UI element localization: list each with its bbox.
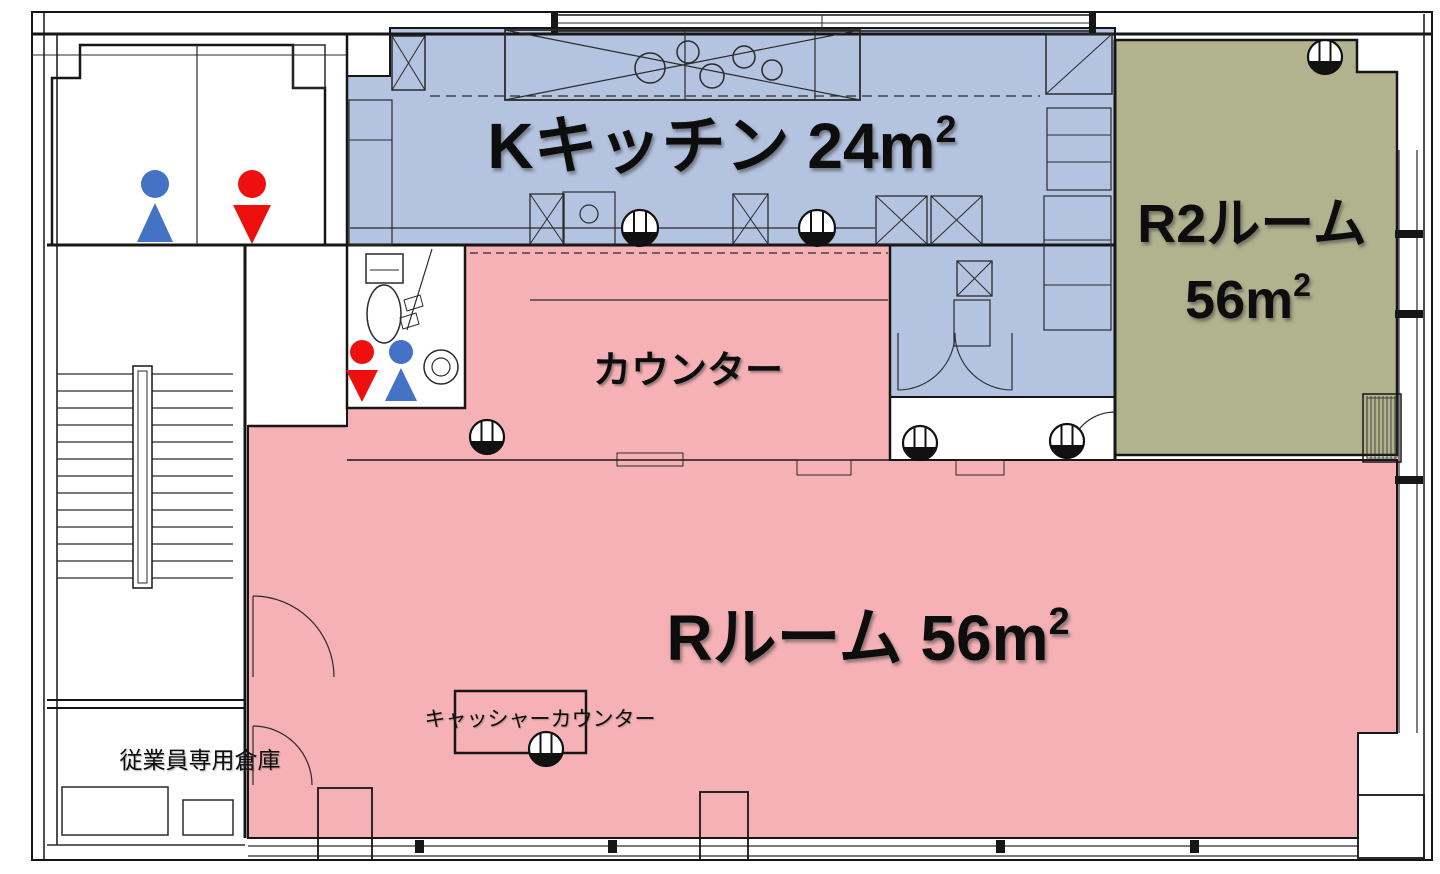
column-symbol-icon [799, 210, 835, 246]
storage-top-wall [47, 700, 245, 708]
bottom-window-tick-4 [1190, 840, 1199, 853]
stair-rail-inner [138, 371, 147, 583]
male-icon-body [385, 368, 417, 401]
male-toilet-icon [385, 340, 417, 401]
bottom-right-pillar [1358, 795, 1424, 858]
bottom-window-tick-1 [415, 840, 424, 853]
male-restroom-icon [137, 170, 173, 242]
r2-label-name: R2ルーム [1137, 194, 1366, 254]
storage-shelf-small [183, 800, 233, 835]
storage-label: 従業員専用倉庫 [120, 747, 281, 773]
r2-room-label-line1: R2ルーム [1137, 194, 1366, 254]
counter-label: カウンター [593, 350, 783, 392]
floor-plan-drawing: 従業員専用倉庫 [0, 0, 1440, 874]
wash-basin-outer [424, 350, 458, 384]
stair-treads-right [152, 374, 233, 578]
right-window-tick-3 [1395, 476, 1423, 484]
column-base [904, 447, 937, 460]
cashier-counter-label: キャッシャーカウンター [425, 708, 656, 731]
r-room-label: Rルーム 56m2 [666, 601, 1069, 674]
bottom-window-tick-2 [608, 840, 617, 853]
stair-rail-outer [133, 366, 152, 588]
female-toilet-icon [346, 340, 378, 402]
male-icon-head [141, 170, 169, 198]
female-icon-head [350, 340, 374, 364]
restroom-outline [52, 45, 325, 245]
kitchen-label-sup: 2 [935, 109, 956, 151]
kitchen-label-main: Kキッチン 24m [487, 110, 935, 182]
toilet-room [346, 245, 465, 408]
male-icon-body [137, 203, 173, 242]
r-label-main: Rルーム 56m [666, 602, 1048, 674]
column-symbol-icon [470, 420, 504, 454]
female-icon-body [233, 205, 271, 244]
restroom-closet [293, 45, 325, 88]
restroom-upper [52, 45, 325, 245]
female-restroom-icon [233, 170, 271, 244]
top-window-post-right [1089, 13, 1096, 33]
wash-basin-inner [432, 358, 450, 376]
column-symbol-icon [903, 426, 937, 460]
r2-label-sup: 2 [1293, 267, 1311, 303]
bottom-right-step [1358, 733, 1397, 795]
toilet-partition [407, 249, 432, 330]
column-base [1051, 445, 1084, 458]
r2-room-label-line2: 56m2 [1185, 267, 1311, 330]
toilet-bowl [367, 285, 401, 343]
r-label-sup: 2 [1049, 601, 1070, 643]
r2-label-area: 56m [1185, 270, 1293, 330]
right-window-tick-2 [1395, 310, 1423, 318]
storage-shelf-large [62, 787, 168, 835]
male-icon-head [389, 340, 413, 364]
right-window-tick-1 [1395, 230, 1423, 238]
female-icon-head [238, 170, 266, 198]
stairwell [57, 366, 233, 588]
column-symbol-icon [529, 732, 563, 766]
column-symbol-icon [622, 210, 658, 246]
partition-shelf-1 [404, 295, 423, 311]
stair-treads-left [57, 374, 133, 578]
female-icon-body [346, 370, 378, 402]
bottom-window-tick-3 [996, 840, 1005, 853]
kitchen-label: Kキッチン 24m2 [487, 109, 956, 182]
column-symbol-icon [1308, 40, 1342, 74]
floor-plan-page: 従業員専用倉庫 [0, 0, 1440, 874]
left-wall-lines [44, 12, 57, 860]
column-symbol-icon [1050, 424, 1084, 458]
toilet-tank [366, 254, 403, 283]
